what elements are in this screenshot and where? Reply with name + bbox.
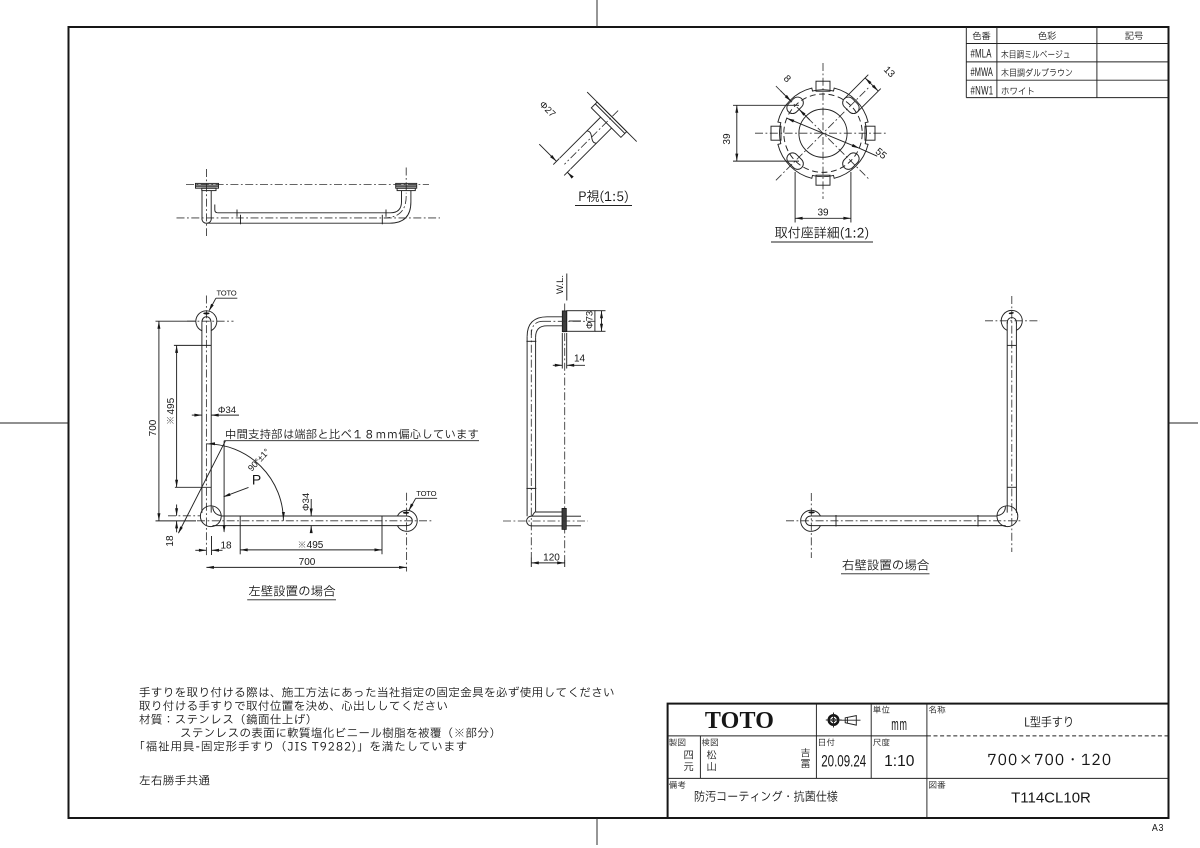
svg-text:495: 495 (166, 397, 177, 414)
svg-text:Φ73: Φ73 (584, 311, 595, 329)
svg-text:18: 18 (220, 541, 232, 552)
svg-text:mm: mm (891, 715, 908, 734)
svg-text:P: P (252, 472, 261, 488)
svg-text:39: 39 (722, 133, 733, 145)
svg-text:18: 18 (165, 535, 176, 547)
svg-text:20.09.24: 20.09.24 (821, 753, 866, 772)
svg-text:495: 495 (307, 540, 324, 551)
svg-text:W.L.: W.L. (555, 275, 566, 294)
svg-text:1:10: 1:10 (884, 753, 915, 770)
svg-text:A3: A3 (1152, 822, 1164, 834)
svg-text:Φ34: Φ34 (301, 493, 312, 511)
svg-text:#MLA: #MLA (971, 48, 992, 61)
svg-text:TOTO: TOTO (705, 708, 774, 734)
svg-text:Φ34: Φ34 (218, 405, 236, 416)
svg-text:700: 700 (299, 557, 316, 568)
svg-text:#NW1: #NW1 (971, 85, 994, 98)
svg-text:39: 39 (817, 208, 829, 219)
svg-text:#MWA: #MWA (971, 66, 994, 79)
svg-text:TOTO: TOTO (416, 489, 436, 498)
svg-text:700: 700 (148, 419, 159, 436)
svg-text:14: 14 (574, 354, 586, 365)
svg-text:TOTO: TOTO (217, 289, 237, 298)
svg-text:120: 120 (543, 553, 560, 564)
svg-text:T114CL10R: T114CL10R (1011, 790, 1091, 807)
